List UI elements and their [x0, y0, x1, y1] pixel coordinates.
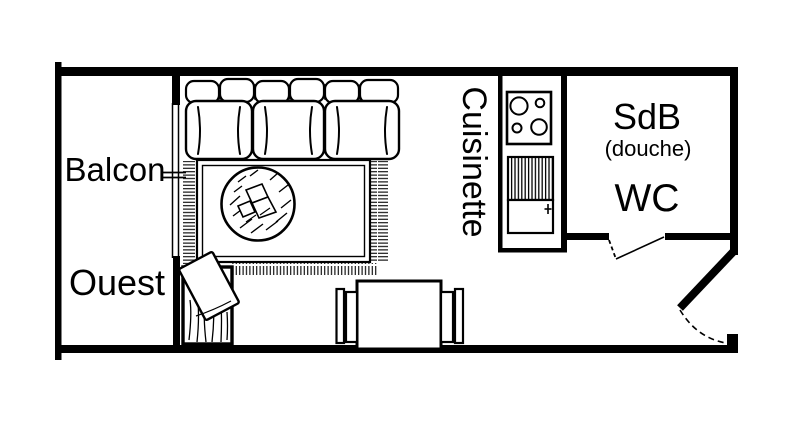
- floorplan-canvas: Balcon Ouest Cuisinette SdB (douche) WC: [0, 0, 800, 428]
- window-wall-upper: [172, 74, 180, 105]
- wc-label: WC: [615, 177, 680, 220]
- bathroom-wall-bottom-left: [561, 233, 609, 240]
- rug-fringe-bottom: [232, 263, 378, 275]
- counter-left-edge: [498, 74, 503, 252]
- sink-unit: [508, 157, 553, 233]
- counter-bottom-edge: [498, 248, 567, 253]
- rug-fringe-right: [371, 161, 388, 262]
- wall-top: [55, 67, 738, 76]
- bathroom-wall-left: [561, 70, 567, 252]
- bathroom-wall-bottom-right: [665, 233, 738, 240]
- dining-table: [357, 281, 441, 349]
- armchair: [179, 251, 240, 344]
- wall-left: [55, 62, 62, 360]
- sofa: [186, 79, 399, 159]
- stove-icon: [507, 92, 551, 144]
- wall-right: [730, 67, 738, 255]
- entry-door-jamb: [727, 334, 738, 353]
- balcony-label: Balcon: [65, 151, 166, 188]
- rug-fringe-left: [183, 161, 196, 264]
- bathroom-note-label: (douche): [605, 136, 692, 161]
- dining-set: [337, 281, 464, 349]
- round-pouf: [222, 168, 295, 241]
- balcony-orientation-label: Ouest: [69, 262, 165, 303]
- bathroom-label: SdB: [613, 96, 681, 137]
- background: [0, 0, 800, 428]
- chair-right: [441, 289, 463, 343]
- kitchenette-label: Cuisinette: [455, 86, 493, 237]
- chair-left: [337, 289, 358, 343]
- floorplan-page: Balcon Ouest Cuisinette SdB (douche) WC: [0, 0, 800, 428]
